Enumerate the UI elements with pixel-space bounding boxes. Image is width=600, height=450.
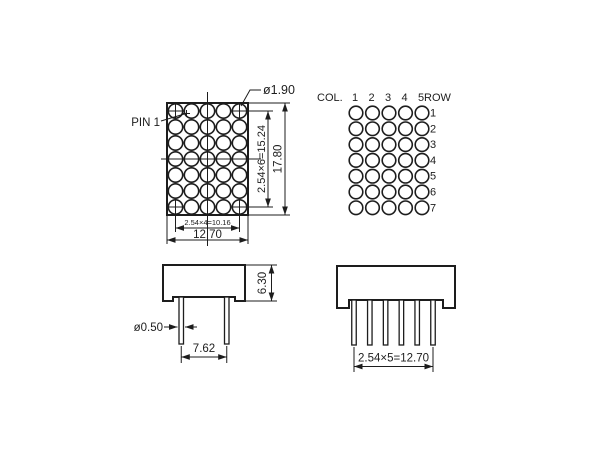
side-view: 6.30 ø0.50 7.62	[134, 265, 277, 363]
pinout-dot	[382, 138, 396, 152]
led-dot	[168, 168, 182, 182]
row-header: ROW	[424, 92, 452, 104]
led-dot	[232, 120, 246, 134]
pinout-dot	[366, 169, 380, 183]
pinout-dot	[349, 169, 363, 183]
pinout-col-labels: 12345	[352, 92, 424, 104]
pinout-dot	[366, 185, 380, 199]
led-dot	[216, 136, 230, 150]
pinout-dot	[349, 138, 363, 152]
led-dot	[168, 184, 182, 198]
grid-index-label: 4	[430, 155, 436, 167]
pinout-dot	[399, 201, 413, 215]
pinout-row-labels: 1234567	[430, 108, 436, 215]
pinout-dot	[349, 154, 363, 168]
dim-pin-row-width: 2.54×5=12.70	[354, 347, 433, 372]
pinout-dot	[366, 122, 380, 136]
pinout-dot	[399, 154, 413, 168]
pinout-dot	[382, 106, 396, 120]
dim-height-overall-label: 17.80	[273, 145, 285, 174]
dim-body-height-label: 6.30	[257, 272, 269, 294]
dim-width-overall-label: 12.70	[193, 229, 222, 241]
grid-index-label: 1	[352, 92, 358, 104]
pinout-dot	[415, 154, 429, 168]
pin	[383, 300, 388, 345]
grid-index-label: 2	[368, 92, 374, 104]
grid-index-label: 5	[430, 171, 436, 183]
led-dot	[184, 136, 198, 150]
dim-height-pitch-label: 2.54×6=15.24	[256, 125, 268, 193]
dim-body-height: 6.30	[246, 265, 277, 301]
dim-pin-diameter: ø0.50	[134, 322, 197, 334]
led-dot	[168, 136, 182, 150]
pin1-label: PIN 1	[131, 117, 160, 129]
pinout-dot	[349, 185, 363, 199]
dot-matrix-display-drawing: PIN 1 ø1.90 2.54×6=15.24 17.80 2.54×4=10…	[0, 0, 600, 450]
pin	[431, 300, 436, 345]
led-dot	[184, 184, 198, 198]
dim-pin-spacing: 7.62	[181, 343, 227, 363]
pinout-dot	[382, 169, 396, 183]
led-dot	[232, 136, 246, 150]
grid-index-label: 6	[430, 187, 436, 199]
led-dot	[168, 120, 182, 134]
dim-pin-spacing-label: 7.62	[193, 343, 215, 355]
dim-width-pitch-label: 2.54×4=10.16	[184, 218, 230, 227]
side-body-outline	[163, 265, 245, 301]
grid-index-label: 1	[430, 108, 436, 120]
dim-pin-row-width-label: 2.54×5=12.70	[358, 353, 429, 365]
pinout-dot	[366, 138, 380, 152]
pin	[179, 297, 184, 344]
pinout-dot	[415, 201, 429, 215]
pinout-dot	[415, 106, 429, 120]
pinout-dot	[349, 106, 363, 120]
grid-index-label: 7	[430, 202, 436, 214]
pinout-dot	[382, 122, 396, 136]
pinout-dot	[382, 185, 396, 199]
pinout-dot	[382, 154, 396, 168]
pinout-dot	[349, 201, 363, 215]
grid-index-label: 3	[385, 92, 391, 104]
pin	[225, 297, 230, 344]
led-dot	[216, 184, 230, 198]
pinout-dot	[415, 138, 429, 152]
led-dot	[216, 104, 230, 118]
technical-drawing-canvas: PIN 1 ø1.90 2.54×6=15.24 17.80 2.54×4=10…	[0, 0, 600, 450]
pin	[352, 300, 357, 345]
pinout-dot	[399, 138, 413, 152]
led-dot	[216, 168, 230, 182]
pinout-dot	[399, 185, 413, 199]
pinout-dot-grid	[349, 106, 429, 214]
pinout-dot	[366, 201, 380, 215]
led-dot	[216, 120, 230, 134]
grid-index-label: 2	[430, 123, 436, 135]
pinout-dot	[382, 201, 396, 215]
pin	[415, 300, 420, 345]
bottom-view: 2.54×5=12.70	[337, 266, 455, 372]
led-dot	[184, 168, 198, 182]
pinout-dot	[415, 185, 429, 199]
pin	[368, 300, 373, 345]
pin	[399, 300, 404, 345]
dim-pin-diameter-label: ø0.50	[134, 322, 163, 334]
front-view: PIN 1 ø1.90 2.54×6=15.24 17.80 2.54×4=10…	[131, 83, 295, 246]
pinout-dot	[366, 154, 380, 168]
pinout-dot	[415, 122, 429, 136]
led-dot	[232, 184, 246, 198]
pinout-dot	[349, 122, 363, 136]
pinout-dot	[399, 106, 413, 120]
pinout-dot	[399, 122, 413, 136]
led-dot	[184, 200, 198, 214]
led-dot	[184, 120, 198, 134]
grid-index-label: 3	[430, 139, 436, 151]
grid-index-label: 4	[401, 92, 407, 104]
led-dot	[232, 168, 246, 182]
col-header: COL.	[317, 92, 343, 104]
pinout-dot	[366, 106, 380, 120]
pinout-dot	[399, 169, 413, 183]
led-dot	[216, 200, 230, 214]
pinout-dot	[415, 169, 429, 183]
pinout-view: COL. 12345 ROW 1234567	[317, 92, 452, 215]
dot-diameter-label: ø1.90	[263, 83, 295, 97]
